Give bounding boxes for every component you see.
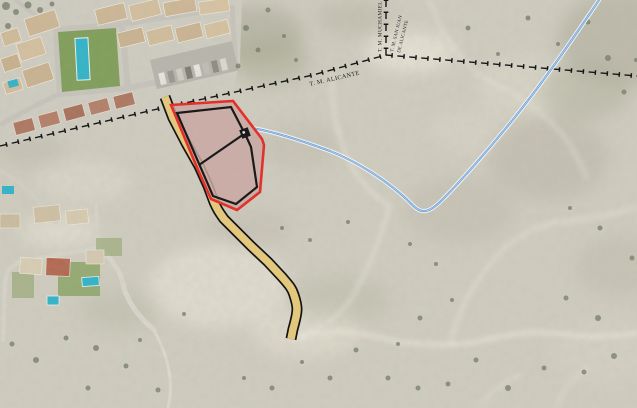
map-canvas: T. M. ALICANTE T. M. MUCHAMIEL T. M. SAN… — [0, 0, 637, 408]
label-tm-muchamiel: T. M. MUCHAMIEL — [378, 1, 384, 52]
site-location-map: T. M. ALICANTE T. M. MUCHAMIEL T. M. SAN… — [0, 0, 637, 408]
photo-grain — [0, 0, 637, 408]
